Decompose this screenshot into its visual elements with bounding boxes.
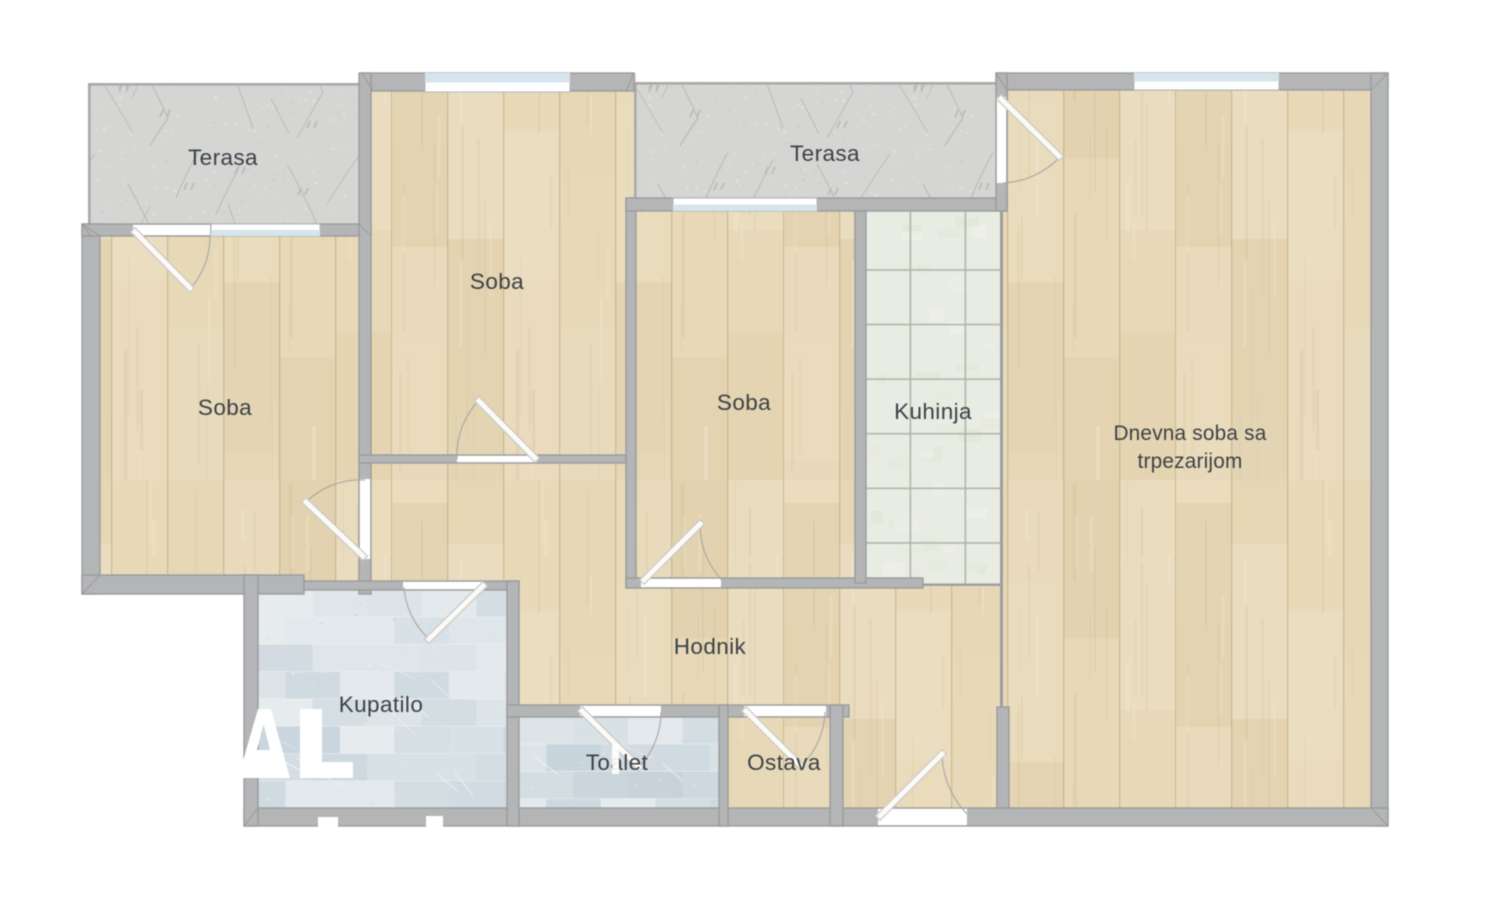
svg-text:Hodnik: Hodnik	[674, 634, 747, 659]
svg-text:Kuhinja: Kuhinja	[894, 399, 972, 424]
svg-text:Terasa: Terasa	[188, 145, 258, 170]
svg-text:Terasa: Terasa	[790, 141, 860, 166]
svg-text:Soba: Soba	[198, 395, 252, 420]
svg-text:Dnevna soba sa: Dnevna soba sa	[1113, 422, 1266, 445]
svg-text:Ostava: Ostava	[747, 750, 821, 775]
svg-text:trpezarijom: trpezarijom	[1137, 450, 1242, 473]
svg-text:Kupatilo: Kupatilo	[339, 692, 424, 717]
svg-text:Soba: Soba	[717, 390, 771, 415]
svg-text:Soba: Soba	[470, 269, 524, 294]
